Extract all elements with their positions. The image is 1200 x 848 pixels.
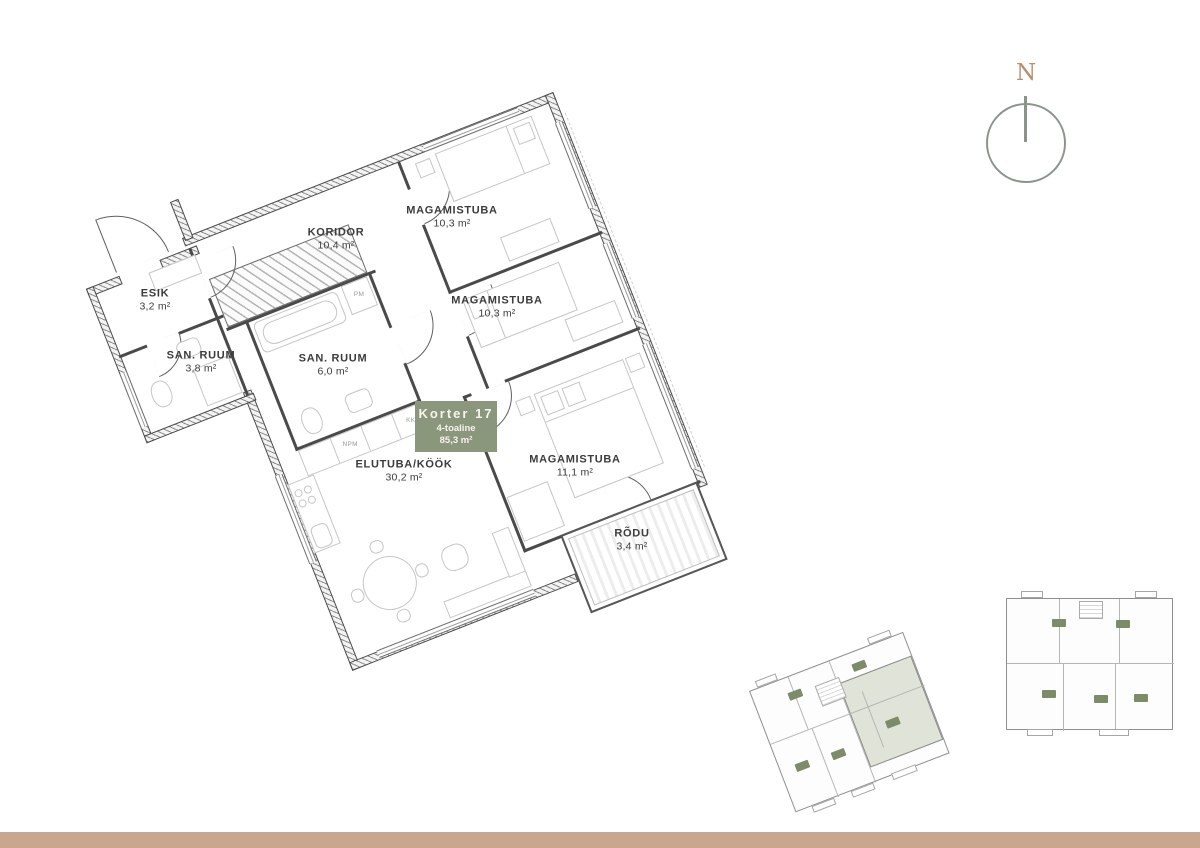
- wall: [422, 224, 452, 294]
- chair: [368, 538, 386, 555]
- room-label-esik: ESIK 3,2 m²: [140, 288, 171, 313]
- room-label-rodu: RÕDU 3,4 m²: [614, 528, 649, 553]
- bed: [435, 116, 551, 202]
- neighbor-wall-stub: [170, 199, 194, 241]
- unit-badge: [831, 748, 847, 760]
- mini-wall: [1119, 599, 1120, 663]
- nightstand: [515, 396, 536, 417]
- room-label-san-ruum-small: SAN. RUUM 3,8 m²: [167, 350, 236, 375]
- floor-plan-sheet: PM NPM KK ESIK 3,2 m² SAN. RUUM: [0, 0, 1200, 848]
- mini-balcony: [1027, 729, 1053, 736]
- unit-total-area: 85,3 m²: [417, 435, 495, 446]
- door-arc-bath-large: [392, 310, 446, 364]
- dishwasher-label: NPM: [337, 441, 363, 448]
- window: [555, 121, 596, 210]
- mini-balcony: [811, 798, 836, 813]
- mini-balcony: [1021, 591, 1043, 598]
- armchair: [438, 540, 472, 574]
- chair: [395, 607, 413, 624]
- room-label-magamistuba-3: MAGAMISTUBA 11,1 m²: [529, 454, 620, 479]
- compass-icon: [986, 103, 1066, 183]
- floor-thumbnail-other[interactable]: [1006, 598, 1173, 730]
- footer-accent-bar: [0, 832, 1200, 848]
- mini-wall: [1115, 663, 1116, 731]
- unit-badge: [794, 760, 810, 772]
- unit-info-card: Korter 17 4-toaline 85,3 m²: [415, 401, 497, 452]
- mini-wall: [1063, 663, 1064, 731]
- mini-balcony: [851, 783, 876, 798]
- unit-badge: [851, 660, 867, 672]
- compass-north-label: N: [1012, 60, 1040, 86]
- unit-badge: [1052, 619, 1066, 627]
- mini-balcony: [755, 673, 778, 687]
- wall: [403, 363, 421, 403]
- desk: [500, 218, 560, 262]
- sink: [343, 387, 375, 415]
- wall: [397, 161, 411, 190]
- wall: [119, 345, 148, 359]
- nightstand: [625, 352, 646, 373]
- mini-balcony: [867, 630, 892, 645]
- unit-badge: [1042, 690, 1056, 698]
- mini-balcony: [1135, 591, 1157, 598]
- unit-title: Korter 17: [417, 406, 495, 421]
- unit-badge: [1094, 695, 1108, 703]
- mini-staircase: [1079, 601, 1103, 619]
- room-label-koridor: KORIDOR 10,4 m²: [308, 227, 365, 252]
- nightstand: [415, 158, 436, 179]
- mini-wall: [788, 677, 809, 730]
- mini-balcony: [1099, 729, 1129, 736]
- mini-balcony: [891, 764, 918, 780]
- dining-table: [355, 548, 425, 618]
- unit-badge: [1134, 694, 1148, 702]
- unit-badge: [1116, 620, 1130, 628]
- mini-wall: [811, 728, 838, 797]
- window: [120, 372, 149, 429]
- mini-wall: [1059, 599, 1060, 663]
- room-label-magamistuba-2: MAGAMISTUBA 10,3 m²: [451, 295, 542, 320]
- mini-wall: [1007, 663, 1174, 664]
- toilet: [147, 378, 176, 410]
- toilet: [298, 405, 327, 437]
- floor-thumbnail-current[interactable]: [749, 632, 950, 812]
- room-label-magamistuba-1: MAGAMISTUBA 10,3 m²: [406, 205, 497, 230]
- unit-room-count: 4-toaline: [417, 423, 495, 434]
- room-label-san-ruum-large: SAN. RUUM 6,0 m²: [299, 353, 368, 378]
- washing-machine-label: PM: [347, 291, 371, 298]
- room-label-elutuba-kook: ELUTUBA/KÖÖK 30,2 m²: [355, 459, 452, 484]
- door-arc-entrance: [95, 199, 169, 273]
